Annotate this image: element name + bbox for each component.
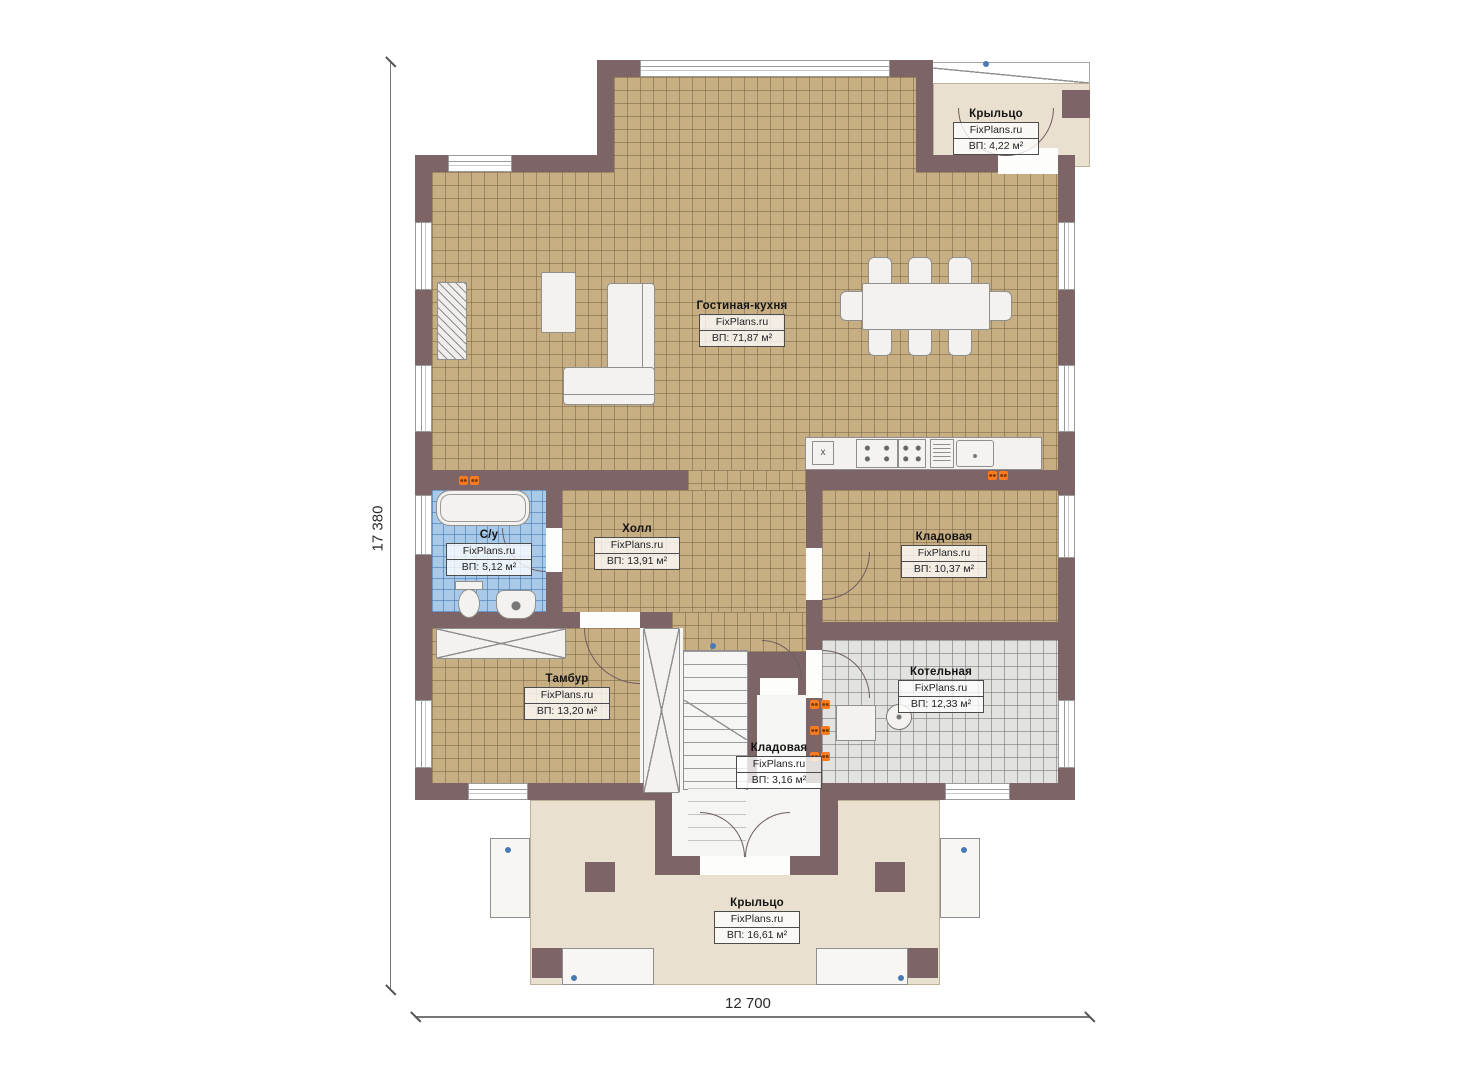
room-area: ВП: 4,22 м² — [953, 138, 1039, 155]
watermark: FixPlans.ru — [524, 687, 610, 704]
dining-chair — [988, 291, 1012, 321]
room-label-porch-bottom: Крыльцо FixPlans.ru ВП: 16,61 м² — [687, 897, 827, 944]
stair-marker — [710, 643, 716, 649]
outlet-icon — [999, 471, 1008, 480]
dining-table — [862, 283, 990, 330]
dining-chair — [908, 328, 932, 356]
dimension-tick — [386, 56, 397, 67]
bathtub — [436, 490, 530, 526]
window — [448, 155, 512, 172]
room-label-vestibule: Тамбур FixPlans.ru ВП: 13,20 м² — [497, 673, 637, 720]
dining-chair — [840, 291, 864, 321]
power-outlets — [810, 726, 830, 735]
watermark: FixPlans.ru — [901, 545, 987, 562]
window — [1058, 700, 1075, 768]
living-hall-opening — [688, 470, 806, 490]
room-area: ВП: 3,16 м² — [736, 772, 822, 789]
watermark: FixPlans.ru — [898, 680, 984, 697]
window — [415, 365, 432, 432]
hall-landing-floor — [672, 612, 806, 652]
room-area: ВП: 5,12 м² — [446, 559, 532, 576]
window — [468, 783, 528, 800]
outlet-icon — [821, 700, 830, 709]
dimension-line-left — [390, 62, 391, 990]
watermark: FixPlans.ru — [953, 122, 1039, 139]
dimension-height-label: 17 380 — [369, 506, 386, 552]
power-outlets — [459, 476, 479, 485]
power-outlets — [988, 471, 1008, 480]
oven-unit — [898, 439, 926, 468]
room-area: ВП: 13,20 м² — [524, 703, 610, 720]
room-area: ВП: 16,61 м² — [714, 927, 800, 944]
room-label-porch-top: Крыльцо FixPlans.ru ВП: 4,22 м² — [926, 108, 1066, 155]
dimension-line-bottom — [415, 1016, 1090, 1018]
coffee-table — [541, 272, 576, 333]
watermark: FixPlans.ru — [714, 911, 800, 928]
room-label-boiler: Котельная FixPlans.ru ВП: 12,33 м² — [871, 666, 1011, 713]
wash-basin — [496, 590, 536, 619]
room-label-small-pantry: Кладовая FixPlans.ru ВП: 3,16 м² — [709, 742, 849, 789]
room-area: ВП: 13,91 м² — [594, 553, 680, 570]
stove-cooktop — [856, 439, 898, 468]
drain-marker — [505, 847, 511, 853]
window — [415, 700, 432, 768]
window — [415, 222, 432, 290]
room-area: ВП: 10,37 м² — [901, 561, 987, 578]
window — [1058, 365, 1075, 432]
room-name: Крыльцо — [730, 897, 784, 909]
room-name: Крыльцо — [969, 108, 1023, 120]
window-bay — [640, 60, 890, 77]
kitchen-sink — [956, 440, 994, 467]
vestibule-wardrobe — [436, 628, 566, 659]
floor-plan-canvas: 17 380 12 700 — [0, 0, 1474, 1080]
toilet-bowl — [458, 589, 480, 618]
room-name: Котельная — [910, 666, 972, 678]
dimension-width-label: 12 700 — [725, 995, 771, 1012]
outlet-icon — [821, 726, 830, 735]
power-outlets — [810, 700, 830, 709]
drain-marker — [898, 975, 904, 981]
outlet-icon — [810, 700, 819, 709]
door-opening-small-pantry — [760, 678, 798, 695]
porch-top-column — [1062, 90, 1090, 118]
dining-chair — [868, 257, 892, 285]
porch-column — [908, 948, 938, 978]
outlet-icon — [470, 476, 479, 485]
room-label-living-kitchen: Гостиная-кухня FixPlans.ru ВП: 71,87 м² — [672, 300, 812, 347]
room-area: ВП: 12,33 м² — [898, 696, 984, 713]
drain-marker — [983, 61, 989, 67]
fireplace-chimney — [437, 282, 467, 360]
door-opening-boiler — [806, 650, 822, 698]
porch-column — [532, 948, 562, 978]
watermark: FixPlans.ru — [446, 543, 532, 560]
outlet-icon — [810, 726, 819, 735]
door-opening-hall-vestibule — [580, 612, 640, 628]
drain-marker — [571, 975, 577, 981]
porch-steps-right — [940, 838, 980, 918]
dining-chair — [948, 328, 972, 356]
counter-sink-mark: x — [812, 441, 834, 465]
dining-chair — [948, 257, 972, 285]
porch-column — [875, 862, 905, 892]
window — [1058, 222, 1075, 290]
tall-wardrobe — [643, 628, 680, 793]
porch-steps-bottom-right — [816, 948, 908, 985]
room-name: Кладовая — [751, 742, 808, 754]
room-name: Холл — [622, 523, 652, 535]
room-name: С/у — [480, 529, 499, 541]
room-label-bathroom: С/у FixPlans.ru ВП: 5,12 м² — [419, 529, 559, 576]
boiler-unit — [836, 705, 876, 741]
dining-chair — [908, 257, 932, 285]
room-label-pantry: Кладовая FixPlans.ru ВП: 10,37 м² — [874, 531, 1014, 578]
window — [945, 783, 1010, 800]
room-label-hall: Холл FixPlans.ru ВП: 13,91 м² — [567, 523, 707, 570]
window — [1058, 495, 1075, 558]
fridge — [930, 439, 954, 468]
outlet-icon — [459, 476, 468, 485]
room-name: Гостиная-кухня — [697, 300, 788, 312]
outlet-icon — [988, 471, 997, 480]
drain-marker — [961, 847, 967, 853]
dimension-tick — [386, 984, 397, 995]
watermark: FixPlans.ru — [699, 314, 785, 331]
watermark: FixPlans.ru — [736, 756, 822, 773]
door-opening-entrance — [700, 856, 790, 875]
room-name: Тамбур — [546, 673, 589, 685]
dining-chair — [868, 328, 892, 356]
watermark: FixPlans.ru — [594, 537, 680, 554]
staircase-break-line — [684, 700, 747, 740]
sofa-horizontal-section — [563, 367, 655, 405]
bay-floor — [614, 77, 916, 174]
door-opening-hall-pantry — [806, 548, 822, 600]
room-name: Кладовая — [916, 531, 973, 543]
porch-column — [585, 862, 615, 892]
room-area: ВП: 71,87 м² — [699, 330, 785, 347]
